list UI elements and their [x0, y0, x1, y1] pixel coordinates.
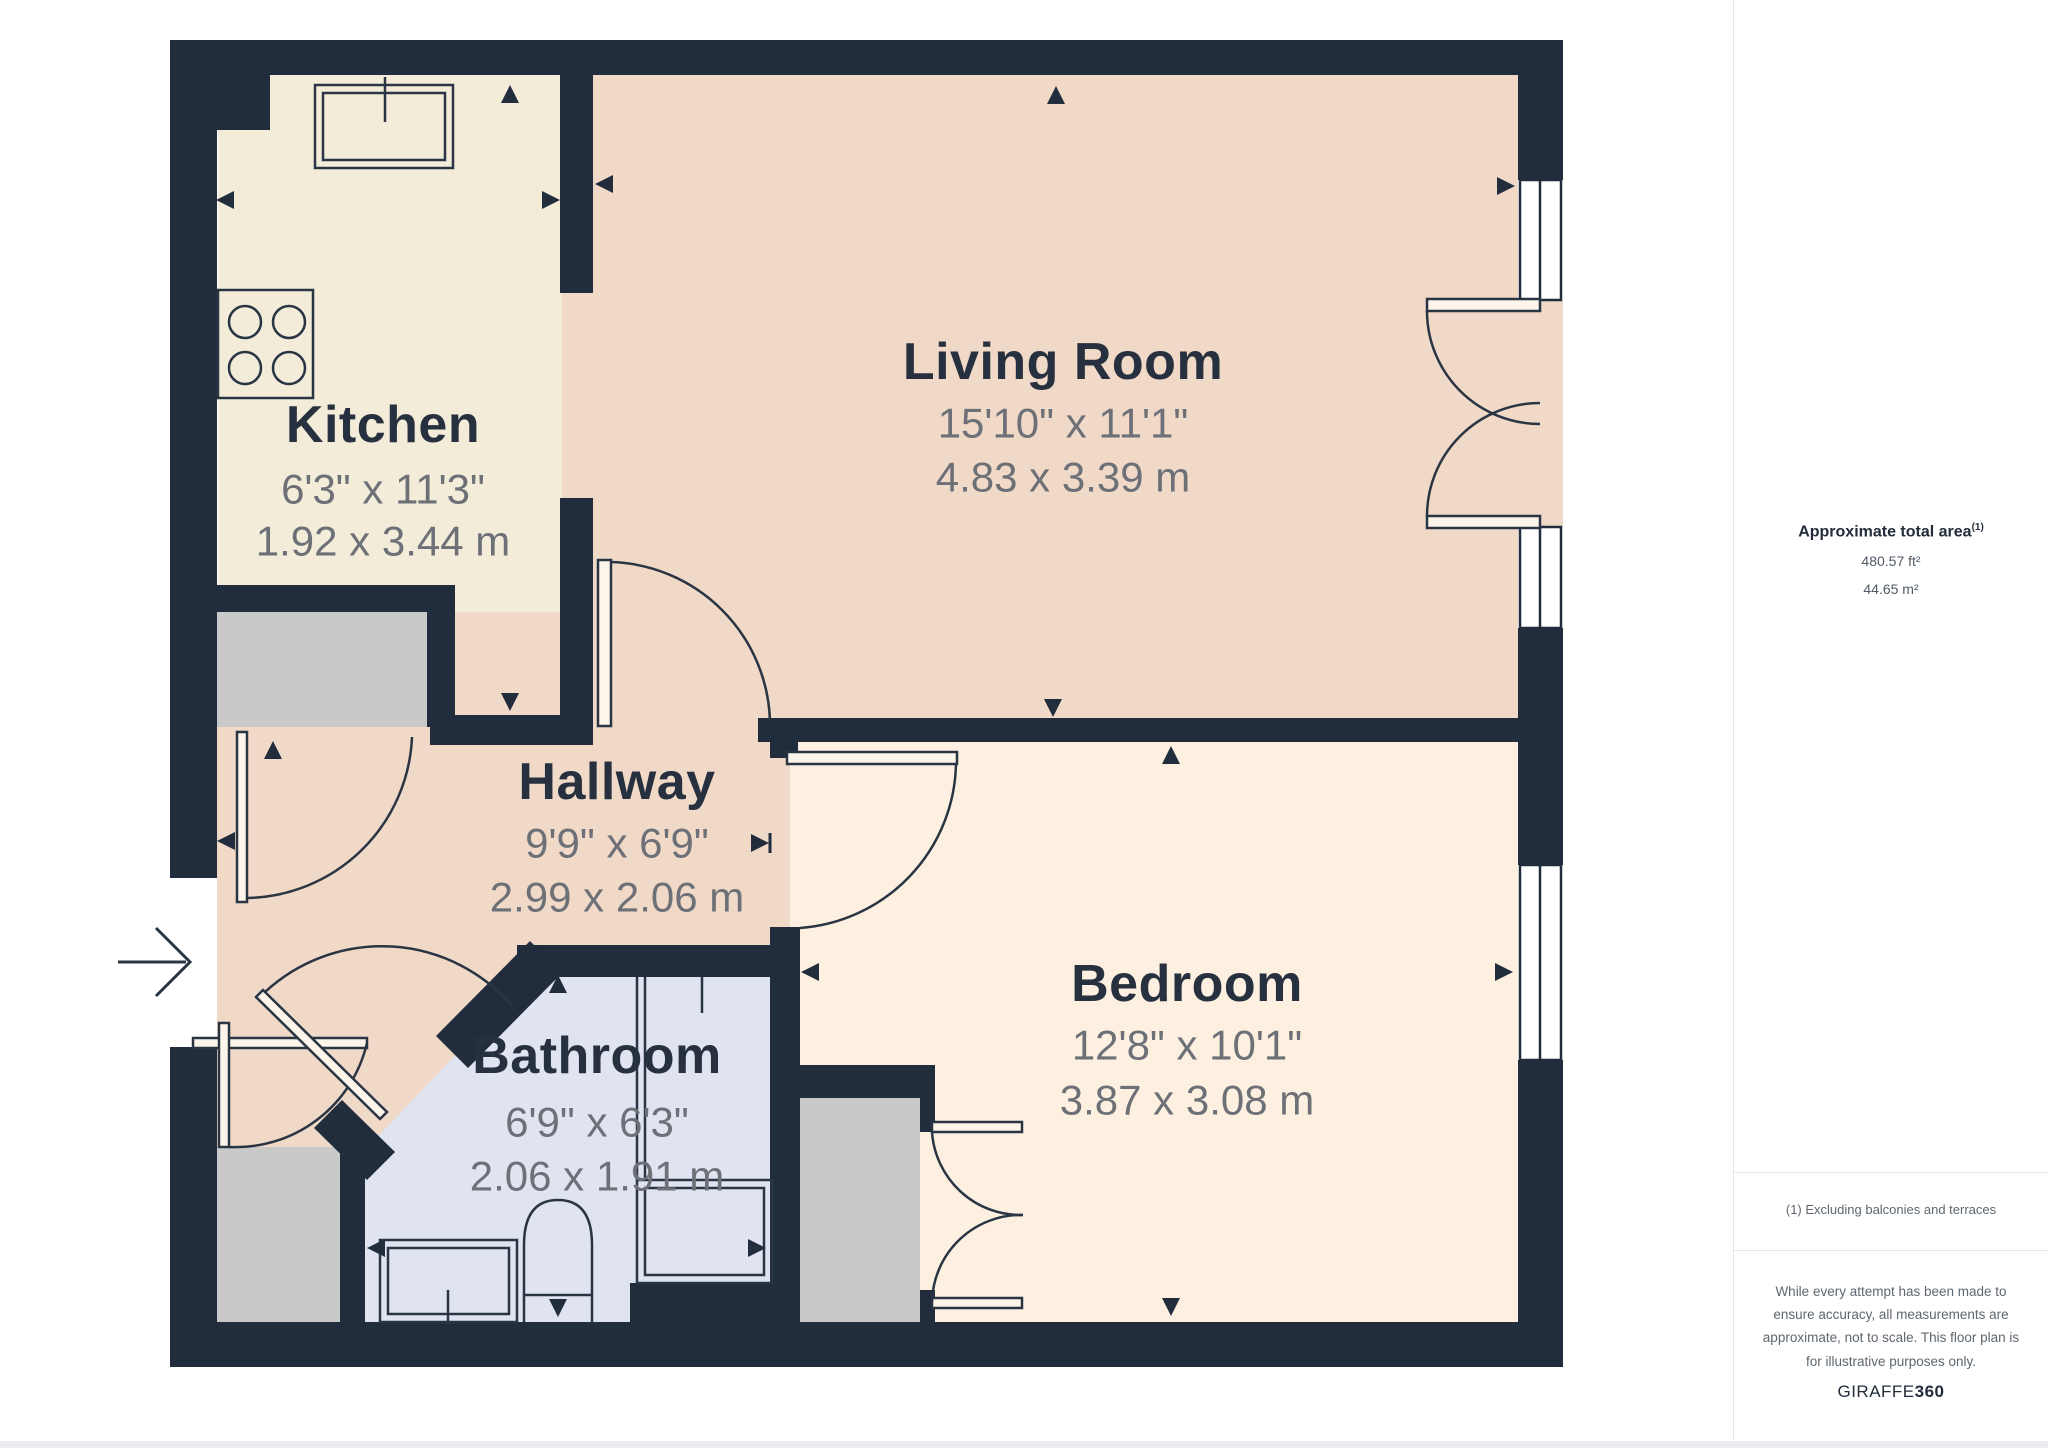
living-room-imperial: 15'10" x 11'1" [938, 400, 1189, 447]
living-room-metric: 4.83 x 3.39 m [936, 454, 1190, 501]
hallway-label: Hallway 9'9" x 6'9" 2.99 x 2.06 m [490, 753, 744, 921]
kitchen-metric: 1.92 x 3.44 m [256, 518, 510, 565]
total-area-superscript: (1) [1972, 522, 1984, 533]
giraffe360-logo: GIRAFFE360 [1734, 1382, 2048, 1402]
floor-plan: Kitchen 6'3" x 11'3" 1.92 x 3.44 m Livin… [0, 0, 1740, 1448]
disclaimer-text: While every attempt has been made to ens… [1734, 1280, 2048, 1373]
bedroom-label: Bedroom 12'8" x 10'1" 3.87 x 3.08 m [1060, 955, 1314, 1124]
living-room-window-top [1520, 180, 1561, 300]
bathroom-metric: 2.06 x 1.91 m [470, 1153, 724, 1200]
hallway-imperial: 9'9" x 6'9" [525, 820, 709, 867]
bottom-edge-strip [0, 1441, 2048, 1448]
brand-text: GIRAFFE [1837, 1382, 1914, 1401]
bathroom-name: Bathroom [472, 1027, 722, 1085]
bedroom-metric: 3.87 x 3.08 m [1060, 1077, 1314, 1124]
bedroom-imperial: 12'8" x 10'1" [1072, 1022, 1302, 1069]
living-room-label: Living Room 15'10" x 11'1" 4.83 x 3.39 m [903, 333, 1223, 501]
french-door-threshold [1518, 300, 1563, 527]
hallway-metric: 2.99 x 2.06 m [490, 874, 744, 921]
bedroom-name: Bedroom [1071, 955, 1303, 1013]
total-area-title-text: Approximate total area [1798, 523, 1971, 540]
living-room-window-bottom [1520, 527, 1561, 628]
kitchen-imperial: 6'3" x 11'3" [281, 466, 485, 513]
entry-arrow-icon [118, 928, 190, 996]
bedroom-window [1520, 865, 1561, 1060]
kitchen-name: Kitchen [286, 396, 480, 454]
storage-closet [217, 612, 427, 727]
total-area-title: Approximate total area(1) [1734, 522, 2048, 541]
info-sidebar: Approximate total area(1) 480.57 ft² 44.… [1733, 0, 2048, 1440]
bedroom-closet [800, 1098, 920, 1322]
room-floors [215, 75, 1563, 1325]
floorplan-page: Kitchen 6'3" x 11'3" 1.92 x 3.44 m Livin… [0, 0, 2048, 1448]
total-area-m: 44.65 m² [1734, 581, 2048, 597]
total-area-block: Approximate total area(1) 480.57 ft² 44.… [1734, 522, 2048, 597]
total-area-ft: 480.57 ft² [1734, 553, 2048, 569]
sidebar-divider-2 [1734, 1250, 2048, 1251]
entry-closet [215, 1147, 340, 1322]
area-footnote: (1) Excluding balconies and terraces [1734, 1202, 2048, 1217]
sidebar-divider-1 [1734, 1172, 2048, 1173]
bathroom-label: Bathroom 6'9" x 6'3" 2.06 x 1.91 m [470, 1027, 724, 1200]
kitchen-label: Kitchen 6'3" x 11'3" 1.92 x 3.44 m [256, 396, 510, 565]
brand-360: 360 [1915, 1382, 1945, 1401]
hallway-name: Hallway [518, 753, 715, 811]
bathroom-imperial: 6'9" x 6'3" [505, 1099, 689, 1146]
living-room-name: Living Room [903, 333, 1223, 391]
